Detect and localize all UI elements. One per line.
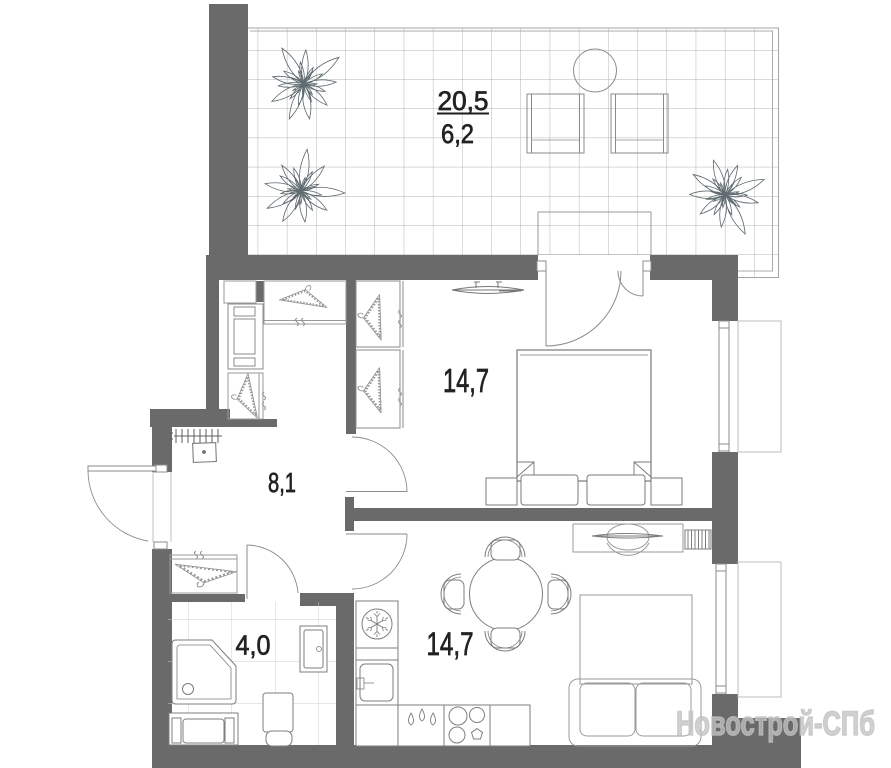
svg-text:Новострой-СПб: Новострой-СПб <box>676 705 875 743</box>
svg-text:20,5: 20,5 <box>438 86 489 116</box>
svg-text:8,1: 8,1 <box>268 467 296 498</box>
svg-text:4,0: 4,0 <box>236 630 271 661</box>
svg-text:14,7: 14,7 <box>427 626 474 662</box>
svg-text:6,2: 6,2 <box>441 119 474 149</box>
svg-text:14,7: 14,7 <box>443 362 489 399</box>
